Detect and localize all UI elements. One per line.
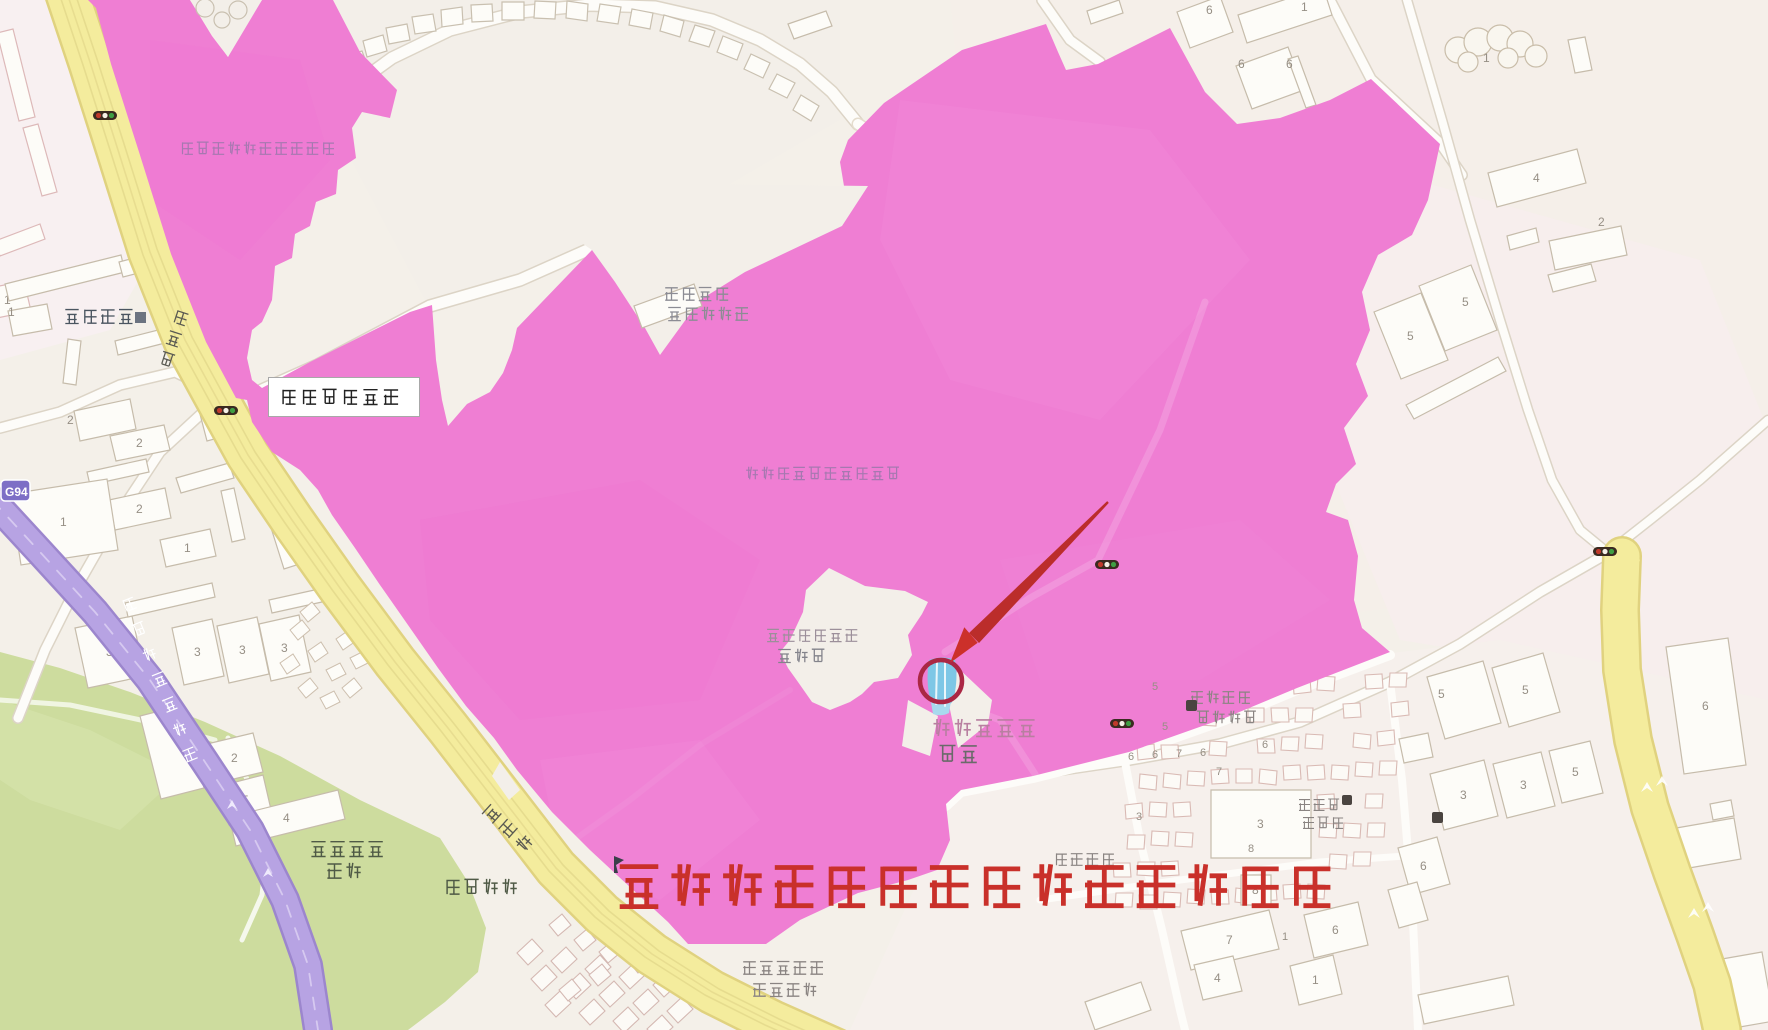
svg-text:4: 4 xyxy=(1533,171,1540,185)
svg-text:6: 6 xyxy=(1152,749,1158,761)
svg-text:6: 6 xyxy=(1262,739,1268,751)
svg-text:1: 1 xyxy=(184,541,191,555)
svg-text:6: 6 xyxy=(1200,747,1206,759)
svg-text:6: 6 xyxy=(1286,57,1293,71)
svg-text:5: 5 xyxy=(1462,295,1469,309)
svg-text:7: 7 xyxy=(1176,748,1182,760)
svg-text:3: 3 xyxy=(1460,788,1467,802)
svg-text:3: 3 xyxy=(1257,817,1264,831)
svg-text:3: 3 xyxy=(281,641,288,655)
svg-text:1: 1 xyxy=(1301,0,1308,14)
svg-text:6: 6 xyxy=(1420,859,1427,873)
svg-text:4: 4 xyxy=(283,811,290,825)
svg-text:8: 8 xyxy=(1248,843,1254,855)
svg-text:5: 5 xyxy=(1152,681,1158,693)
svg-text:3: 3 xyxy=(1136,811,1142,823)
svg-text:G94: G94 xyxy=(5,485,28,499)
svg-text:3: 3 xyxy=(1520,778,1527,792)
svg-text:6: 6 xyxy=(1238,57,1245,71)
svg-text:5: 5 xyxy=(1572,765,1579,779)
svg-text:1: 1 xyxy=(8,305,15,319)
svg-text:5: 5 xyxy=(1438,687,1445,701)
svg-text:3: 3 xyxy=(194,645,201,659)
svg-text:7: 7 xyxy=(1216,766,1222,778)
svg-text:5: 5 xyxy=(1407,329,1414,343)
svg-text:2: 2 xyxy=(136,502,143,516)
svg-text:6: 6 xyxy=(1332,923,1339,937)
svg-text:1: 1 xyxy=(1483,51,1490,65)
svg-text:5: 5 xyxy=(1162,721,1168,733)
svg-text:6: 6 xyxy=(1206,3,1213,17)
svg-text:5: 5 xyxy=(1522,683,1529,697)
svg-text:1: 1 xyxy=(1282,931,1288,943)
svg-text:1: 1 xyxy=(1312,973,1319,987)
svg-text:1: 1 xyxy=(60,515,67,529)
svg-text:4: 4 xyxy=(1214,971,1221,985)
svg-text:3: 3 xyxy=(239,643,246,657)
svg-text:2: 2 xyxy=(67,413,74,427)
svg-text:6: 6 xyxy=(1128,751,1134,763)
svg-text:2: 2 xyxy=(231,751,238,765)
svg-text:2: 2 xyxy=(136,436,143,450)
svg-text:6: 6 xyxy=(1702,699,1709,713)
svg-text:7: 7 xyxy=(1226,933,1233,947)
svg-text:2: 2 xyxy=(1598,215,1605,229)
